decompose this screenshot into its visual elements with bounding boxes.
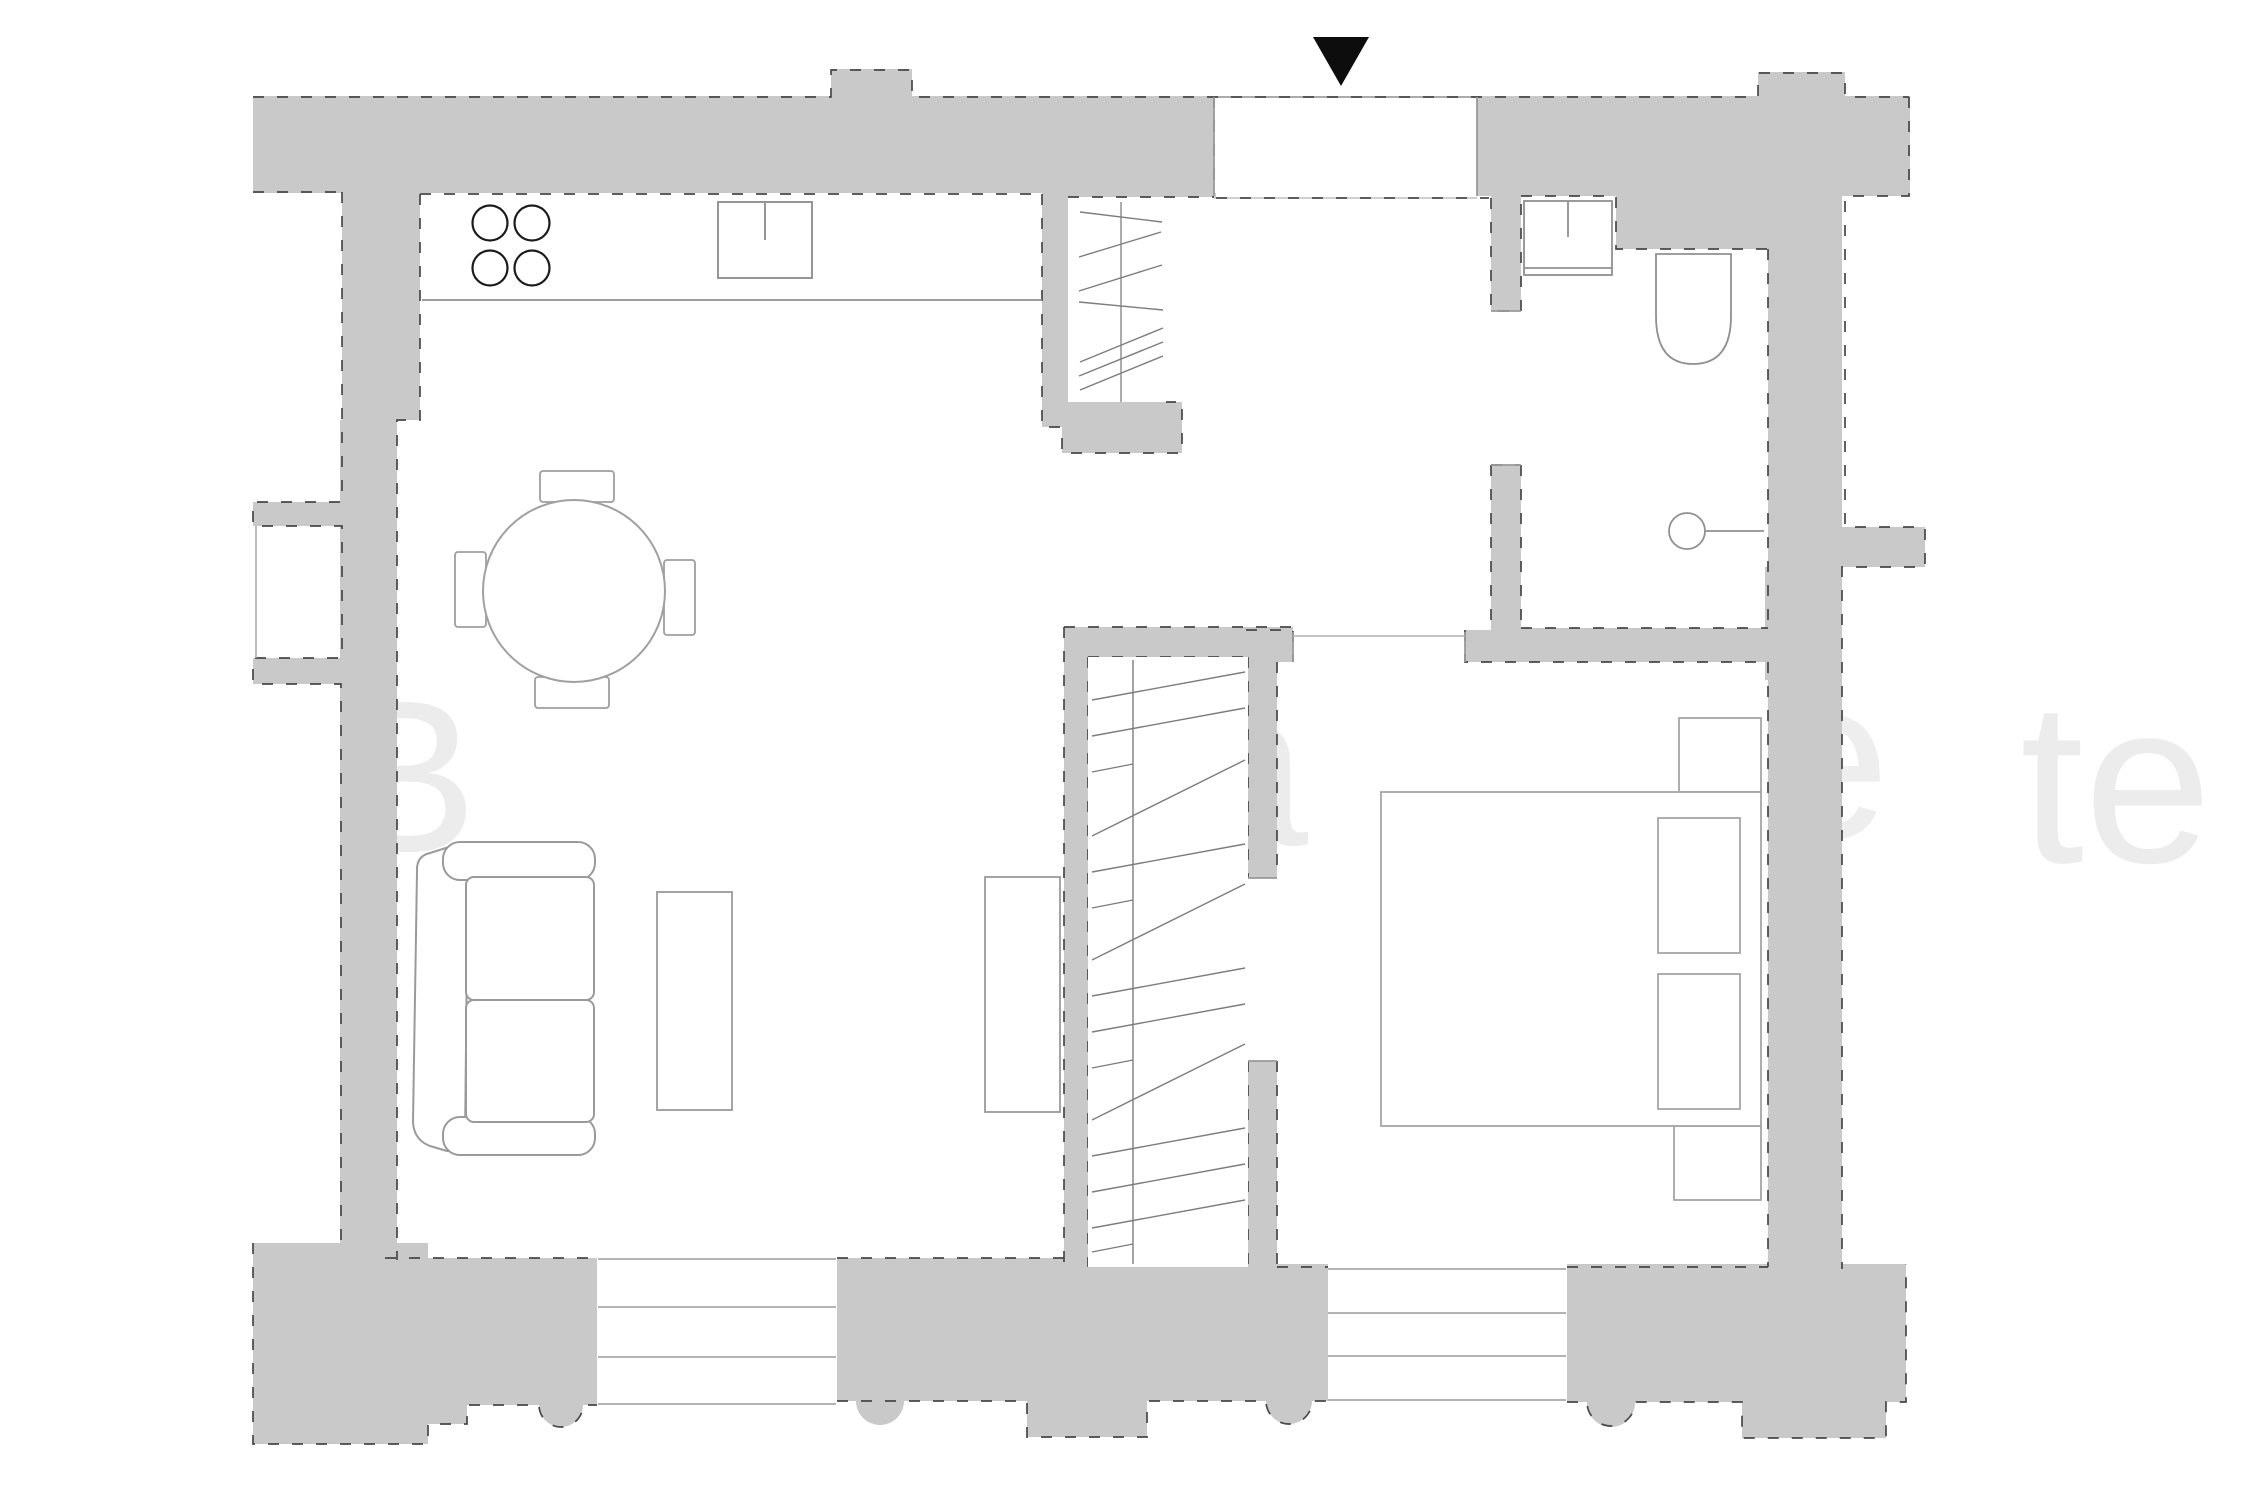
svg-text:te: te [2020, 654, 2212, 911]
